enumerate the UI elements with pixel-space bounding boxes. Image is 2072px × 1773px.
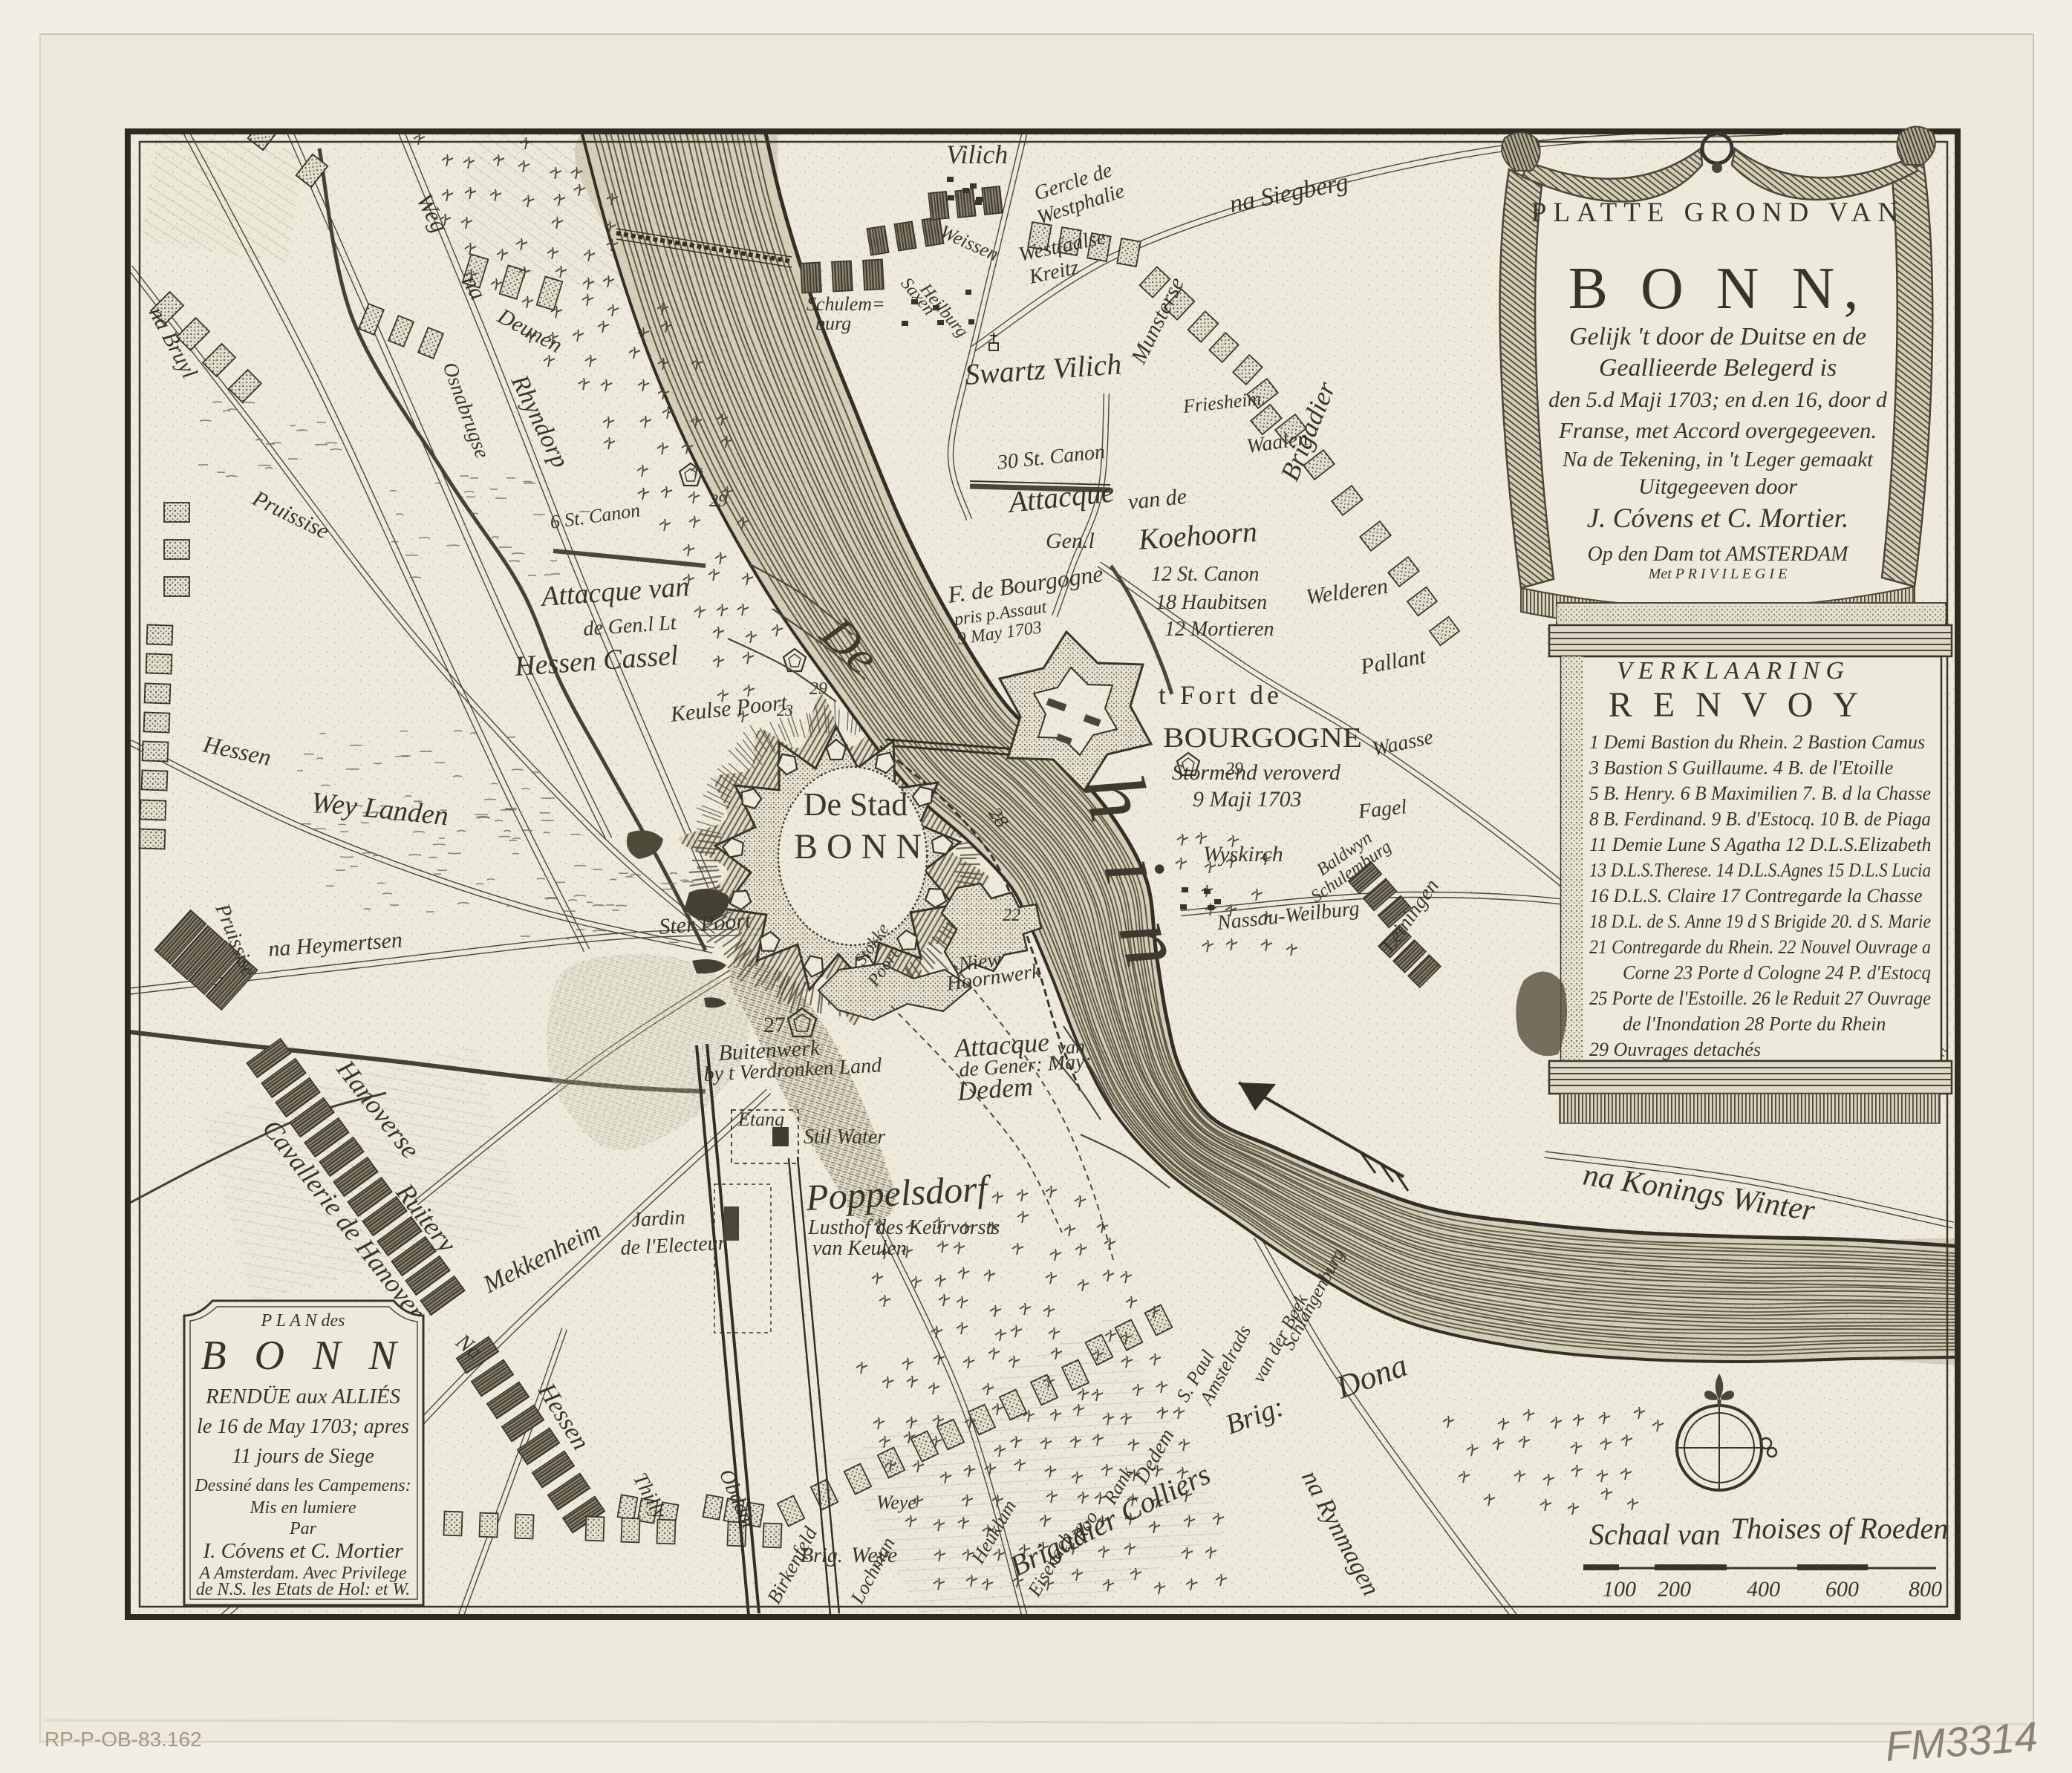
svg-text:11 jours de Siege: 11 jours de Siege <box>232 1445 374 1468</box>
svg-text:PLATTE GROND VAN: PLATTE GROND VAN <box>1531 197 1904 228</box>
svg-text:Mis en lumiere: Mis en lumiere <box>249 1498 356 1518</box>
svg-text:400: 400 <box>1747 1577 1780 1601</box>
svg-text:Geallieerde Belegerd is: Geallieerde Belegerd is <box>1599 354 1837 382</box>
svg-text:Na de Tekening, in 't Leger ge: Na de Tekening, in 't Leger gemaakt <box>1562 448 1874 471</box>
svg-text:den 5.d Maji 1703; en d.en 16,: den 5.d Maji 1703; en d.en 16, door d <box>1548 388 1888 412</box>
svg-text:B O N N: B O N N <box>201 1333 405 1379</box>
svg-text:R E N V O Y: R E N V O Y <box>1609 685 1864 725</box>
svg-text:16 D.L.S. Claire 17 Contregard: 16 D.L.S. Claire 17 Contregarde la Chass… <box>1589 885 1923 907</box>
svg-text:Op den Dam tot AMSTERDAM: Op den Dam tot AMSTERDAM <box>1588 543 1850 566</box>
svg-text:Schaal van: Schaal van <box>1589 1518 1721 1551</box>
svg-text:3 Bastion S Guillaume. 4 B. de: 3 Bastion S Guillaume. 4 B. de l'Etoille <box>1589 757 1893 779</box>
svg-text:J. Cóvens et C. Mortier.: J. Cóvens et C. Mortier. <box>1587 503 1848 534</box>
svg-text:Par: Par <box>289 1519 317 1538</box>
svg-text:Gelijk 't door de Duitse en de: Gelijk 't door de Duitse en de <box>1569 323 1866 350</box>
svg-text:5 B. Henry. 6 B Maximilien 7.: 5 B. Henry. 6 B Maximilien 7. B. d la Ch… <box>1589 783 1931 804</box>
svg-text:P L A N des: P L A N des <box>261 1311 345 1330</box>
svg-text:RP-P-OB-83.162: RP-P-OB-83.162 <box>45 1728 202 1751</box>
svg-text:13 D.L.S.Therese. 14 D.L.S.Agn: 13 D.L.S.Therese. 14 D.L.S.Agnes 15 D.L.… <box>1589 860 1931 881</box>
svg-text:200: 200 <box>1658 1577 1691 1601</box>
svg-text:Corne 23 Porte d Cologne 24 P.: Corne 23 Porte d Cologne 24 P. d'Estocq <box>1623 962 1931 984</box>
svg-text:de N.S. les Etats de Hol: et W: de N.S. les Etats de Hol: et W. <box>196 1580 410 1599</box>
svg-text:V E R K L A A R I N G: V E R K L A A R I N G <box>1617 657 1844 685</box>
svg-text:Franse, met Accord overgegeeve: Franse, met Accord overgegeeven. <box>1558 417 1877 443</box>
svg-text:Thoises of Roeden: Thoises of Roeden <box>1730 1512 1948 1545</box>
svg-text:800: 800 <box>1909 1577 1942 1601</box>
svg-text:25 Porte de l'Estoille. 26 le: 25 Porte de l'Estoille. 26 le Reduit 27 … <box>1589 987 1931 1009</box>
svg-text:Dessiné dans les Campemens:: Dessiné dans les Campemens: <box>194 1476 411 1495</box>
svg-text:RENDÜE aux ALLIÉS: RENDÜE aux ALLIÉS <box>205 1384 401 1408</box>
svg-text:21 Contregarde du Rhein. 22 No: 21 Contregarde du Rhein. 22 Nouvel Ouvra… <box>1589 936 1931 958</box>
svg-text:29 Ouvrages detachés: 29 Ouvrages detachés <box>1589 1039 1761 1060</box>
svg-text:8 B. Ferdinand. 9 B. d'Estocq.: 8 B. Ferdinand. 9 B. d'Estocq. 10 B. de … <box>1589 809 1931 830</box>
svg-text:1 Demi Bastion du Rhein. 2 Bas: 1 Demi Bastion du Rhein. 2 Bastion Camus <box>1589 731 1925 753</box>
svg-text:I. Cóvens et C. Mortier: I. Cóvens et C. Mortier <box>202 1539 403 1563</box>
svg-text:le 16 de May 1703; apres: le 16 de May 1703; apres <box>197 1415 409 1438</box>
svg-text:B O N N,: B O N N, <box>1568 256 1868 321</box>
svg-text:18 D.L. de S. Anne 19 d S Brig: 18 D.L. de S. Anne 19 d S Brigide 20. d … <box>1589 911 1931 933</box>
svg-text:Uitgegeeven door: Uitgegeeven door <box>1638 474 1797 499</box>
svg-text:100: 100 <box>1603 1577 1636 1601</box>
svg-text:de l'Inondation 28 Porte du Rh: de l'Inondation 28 Porte du Rhein <box>1623 1013 1886 1035</box>
svg-text:Met P R I V I L E G I E: Met P R I V I L E G I E <box>1648 566 1788 582</box>
svg-text:600: 600 <box>1825 1577 1859 1601</box>
svg-text:11 Demie Lune S Agatha 12 D.L.: 11 Demie Lune S Agatha 12 D.L.S.Elizabet… <box>1589 834 1932 855</box>
